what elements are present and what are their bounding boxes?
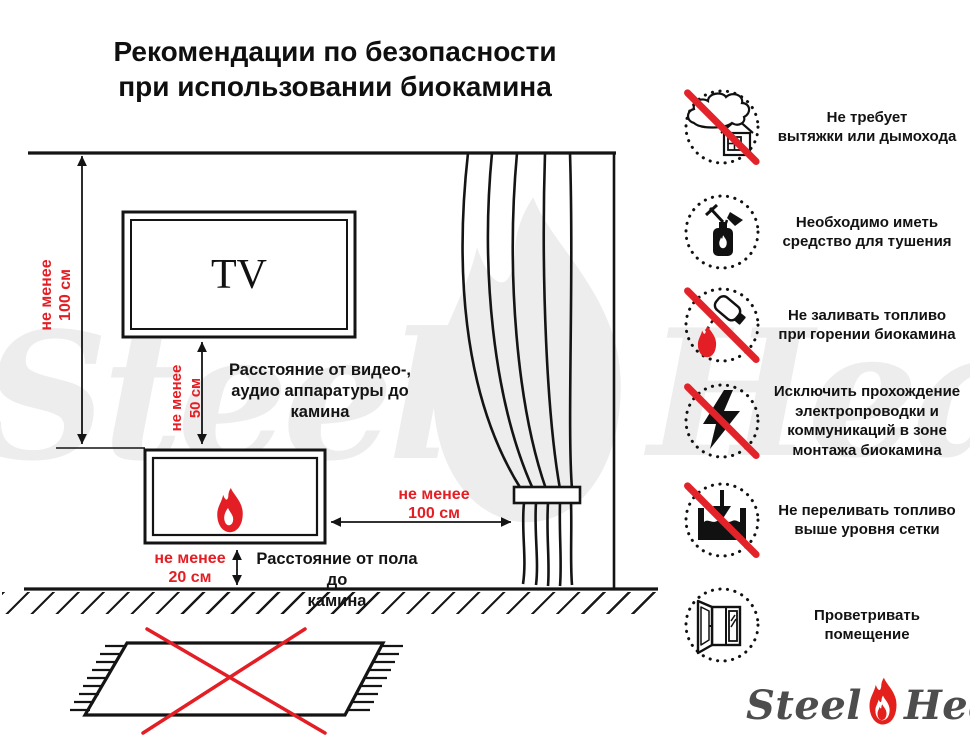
no-electrical-wiring-icon <box>680 379 764 463</box>
caption-floor-distance: Расстояние от пола до камина <box>247 549 427 612</box>
recommendation-text: Проветривать помещение <box>764 606 970 645</box>
carpet-fringe <box>70 646 403 710</box>
caption-av-distance: Расстояние от видео-, аудио аппаратуры д… <box>218 360 422 423</box>
recommendation-text: Исключить прохождение электропроводки и … <box>764 382 970 460</box>
dim-label-fireplace-to-curtain: не менее 100 см <box>368 485 500 523</box>
carpet-cross-icon <box>143 629 325 733</box>
page-title: Рекомендации по безопасности при использ… <box>20 34 650 104</box>
logo-heat: Heat <box>904 682 970 729</box>
no-refueling-while-burning-icon <box>680 283 764 367</box>
open-window-icon <box>680 583 764 667</box>
dim-label-tv-to-fireplace: не менее 50 см <box>167 343 205 453</box>
recommendation-item: Не переливать топливо выше уровня сетки <box>660 468 970 572</box>
recommendation-text: Необходимо иметь средство для тушения <box>764 213 970 252</box>
recommendation-item: Не заливать топливо при горении биокамин… <box>660 273 970 377</box>
recommendation-item: Необходимо иметь средство для тушения <box>660 180 970 284</box>
recommendation-item: Проветривать помещение <box>660 573 970 677</box>
tv-label: TV <box>123 212 355 337</box>
recommendation-item: Не требует вытяжки или дымохода <box>660 75 970 179</box>
logo-steel: Steel <box>746 682 862 729</box>
recommendations-panel: Не требует вытяжки или дымохода Необходи… <box>660 0 970 749</box>
recommendation-text: Не требует вытяжки или дымохода <box>764 108 970 147</box>
logo-flame-icon <box>865 676 901 728</box>
recommendation-text: Не заливать топливо при горении биокамин… <box>764 306 970 345</box>
fire-extinguisher-icon <box>680 190 764 274</box>
recommendation-text: Не переливать топливо выше уровня сетки <box>764 501 970 540</box>
steelheat-logo: Steel Heat <box>746 676 970 734</box>
no-chimney-icon <box>680 85 764 169</box>
dim-label-wall-to-fireplace: не менее 100 см <box>37 235 77 355</box>
no-overfilling-icon <box>680 478 764 562</box>
dim-label-floor-to-fireplace: не менее 20 см <box>147 549 233 587</box>
recommendation-item: Исключить прохождение электропроводки и … <box>660 369 970 473</box>
carpet <box>70 629 403 733</box>
